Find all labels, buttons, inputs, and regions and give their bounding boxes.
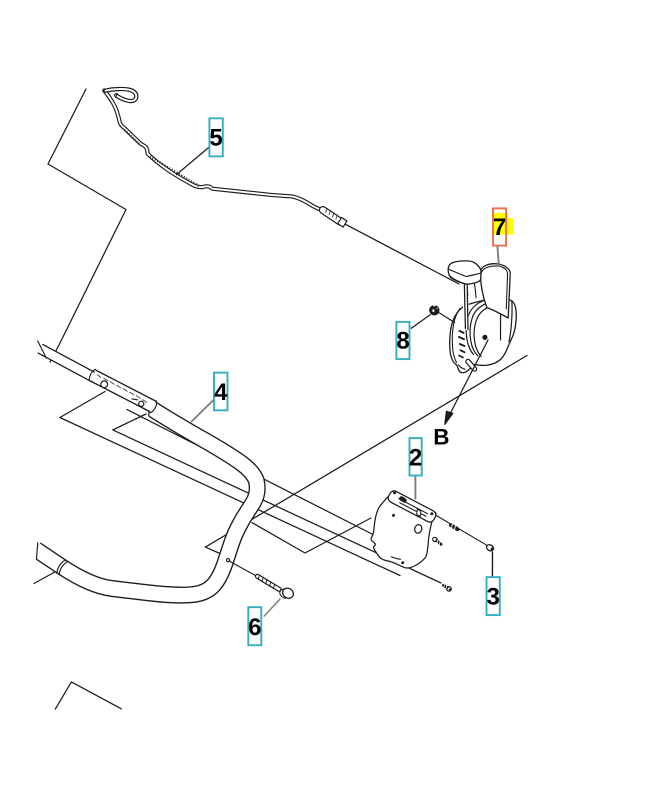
- svg-text:6: 6: [248, 614, 261, 641]
- svg-text:B: B: [433, 425, 449, 450]
- svg-text:3: 3: [487, 584, 500, 611]
- svg-text:2: 2: [409, 444, 422, 471]
- svg-text:7: 7: [493, 214, 506, 241]
- svg-text:8: 8: [396, 328, 409, 355]
- svg-text:5: 5: [209, 125, 222, 152]
- svg-text:4: 4: [214, 379, 228, 406]
